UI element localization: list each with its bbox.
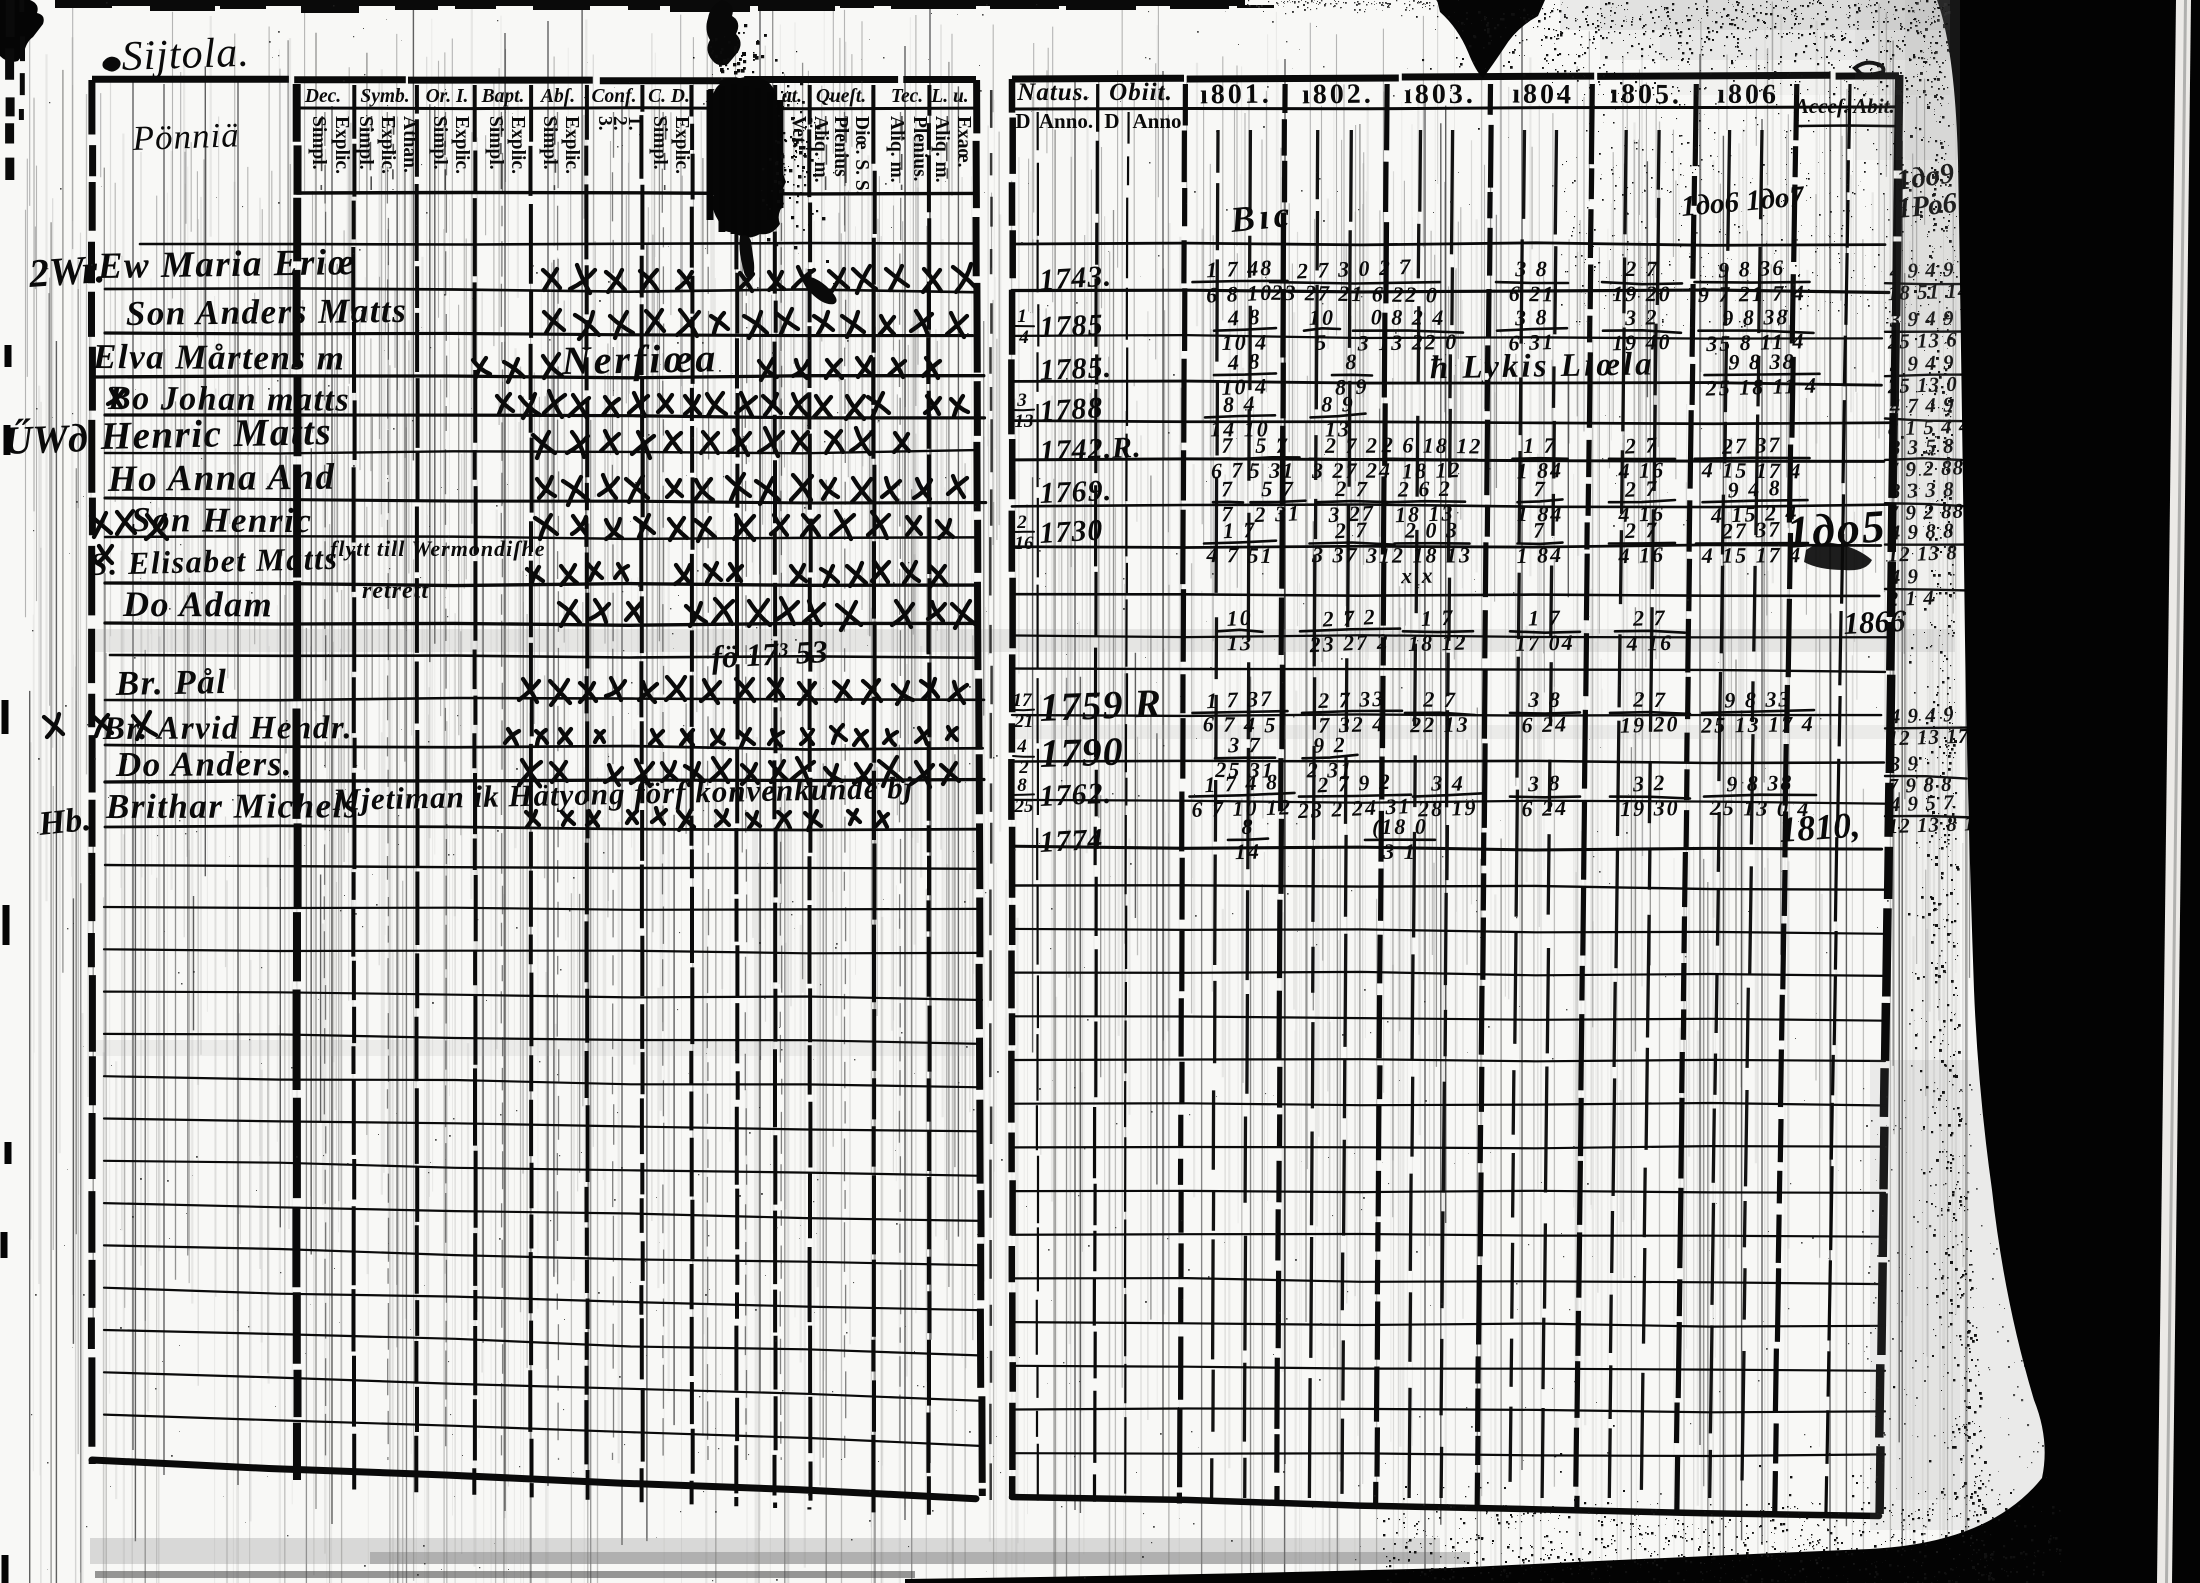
svg-text:9 2: 9 2 <box>1313 732 1347 758</box>
svg-text:8: 8 <box>1017 775 1027 796</box>
svg-text:1743.: 1743. <box>1038 259 1112 297</box>
svg-text:Henric Matts: Henric Matts <box>99 410 332 458</box>
svg-text:S. Elisabet Matts: S. Elisabet Matts <box>89 540 338 582</box>
svg-text:21: 21 <box>1014 711 1034 732</box>
svg-text:5 7: 5 7 <box>1255 433 1289 458</box>
svg-text:2 6 2: 2 6 2 <box>1397 476 1452 502</box>
svg-text:flytt till Wermondiſhe: flytt till Wermondiſhe <box>330 536 546 561</box>
svg-text:1 7: 1 7 <box>1523 433 1557 458</box>
svg-text:retrett: retrett <box>362 578 429 604</box>
svg-text:Explic.: Explic. <box>507 116 528 174</box>
svg-text:3 8: 3 8 <box>1514 304 1549 330</box>
svg-text:17: 17 <box>1013 690 1034 711</box>
svg-text:25 18 11 4: 25 18 11 4 <box>1704 373 1818 401</box>
svg-text:3 8: 3 8 <box>1527 687 1562 712</box>
svg-text:1759 R: 1759 R <box>1039 680 1163 730</box>
svg-text:7: 7 <box>1533 517 1547 543</box>
svg-text:Symb.: Symb. <box>360 86 409 107</box>
svg-text:5: 5 <box>1315 329 1329 354</box>
svg-text:Simpl.: Simpl. <box>308 116 329 170</box>
svg-text:Athan.: Athan. <box>399 116 420 173</box>
svg-text:1785.: 1785. <box>1039 351 1113 387</box>
svg-text:1788: 1788 <box>1038 391 1104 428</box>
svg-text:Or. I.: Or. I. <box>426 86 469 107</box>
svg-text:2 31: 2 31 <box>1253 500 1301 527</box>
svg-text:19 20: 19 20 <box>1612 281 1672 306</box>
svg-text:Abſ.: Abſ. <box>539 86 575 107</box>
svg-text:9 8 38: 9 8 38 <box>1726 770 1794 796</box>
svg-text:fö 17³ 53: fö 17³ 53 <box>710 633 828 675</box>
svg-text:3 2: 3 2 <box>1631 770 1667 797</box>
svg-text:Nerfiœa: Nerfiœa <box>560 335 718 383</box>
svg-text:2Wr.: 2Wr. <box>26 246 106 296</box>
svg-text:6 21: 6 21 <box>1509 281 1556 307</box>
svg-text:Hb.: Hb. <box>36 801 93 843</box>
svg-text:3 1: 3 1 <box>1382 839 1417 864</box>
svg-text:8 4: 8 4 <box>1222 391 1257 417</box>
svg-text:Do Adam: Do Adam <box>122 584 273 624</box>
svg-text:ı802.: ı802. <box>1302 79 1374 111</box>
svg-text:Diœ. S. S.: Diœ. S. S. <box>851 116 872 196</box>
svg-text:4 8: 4 8 <box>1226 348 1262 375</box>
svg-text:1: 1 <box>1017 306 1027 327</box>
svg-text:ı803.: ı803. <box>1404 79 1476 110</box>
svg-text:1 7 48: 1 7 48 <box>1206 255 1274 282</box>
svg-text:Pönniä: Pönniä <box>131 115 240 158</box>
svg-text:Dec.: Dec. <box>304 86 341 107</box>
svg-text:Ew Maria Eriœ: Ew Maria Eriœ <box>97 242 357 287</box>
svg-text:6 24: 6 24 <box>1521 795 1568 821</box>
svg-text:17 04: 17 04 <box>1515 630 1575 656</box>
svg-text:Elva Mårtens m: Elva Mårtens m <box>92 337 346 378</box>
svg-text:Aliq. m.: Aliq. m. <box>931 116 952 183</box>
svg-text:2 7: 2 7 <box>1623 476 1658 502</box>
svg-text:Exaœ.: Exaœ. <box>953 116 974 168</box>
svg-text:3 37 31: 3 37 31 <box>1311 542 1392 568</box>
svg-text:2 7 2: 2 7 2 <box>1321 604 1377 632</box>
svg-text:ħ Lykis Liœla: ħ Lykis Liœla <box>1430 346 1655 386</box>
svg-text:9 8 33: 9 8 33 <box>1724 686 1791 712</box>
svg-text:Explic.: Explic. <box>377 116 398 174</box>
svg-text:2 7: 2 7 <box>1632 687 1667 713</box>
svg-text:4 7 51: 4 7 51 <box>1205 542 1273 568</box>
svg-text:6 8 10: 6 8 10 <box>1206 280 1274 308</box>
svg-text:D: D <box>1015 109 1030 133</box>
svg-text:13: 13 <box>1015 411 1034 432</box>
svg-text:Tec.: Tec. <box>891 86 923 107</box>
svg-text:4 8: 4 8 <box>1226 304 1262 331</box>
svg-text:14: 14 <box>1235 839 1261 864</box>
svg-text:5 7: 5 7 <box>1261 476 1295 501</box>
svg-text:9 8 38: 9 8 38 <box>1722 304 1790 331</box>
svg-text:18 12: 18 12 <box>1408 630 1468 656</box>
svg-text:1790: 1790 <box>1039 728 1124 776</box>
svg-text:4: 4 <box>1018 327 1029 348</box>
svg-text:Ho Anna And: Ho Anna And <box>107 457 336 500</box>
svg-text:1 7: 1 7 <box>1420 605 1455 631</box>
svg-text:27 37: 27 37 <box>1720 516 1782 544</box>
svg-text:2 7: 2 7 <box>1334 476 1369 501</box>
svg-text:Son Henric: Son Henric <box>131 500 313 540</box>
svg-text:16: 16 <box>1015 533 1035 554</box>
svg-text:Son Anders Matts: Son Anders Matts <box>126 291 408 333</box>
svg-text:Obiit.: Obiit. <box>1109 79 1173 106</box>
svg-text:9 8 38: 9 8 38 <box>1728 349 1795 375</box>
svg-text:Queſt.: Queſt. <box>816 86 866 107</box>
svg-text:9 7 21 7 4: 9 7 21 7 4 <box>1698 280 1806 307</box>
svg-text:7: 7 <box>1221 476 1235 502</box>
svg-text:4 16: 4 16 <box>1625 630 1673 656</box>
svg-text:Βɪс: Βɪс <box>1228 194 1296 240</box>
svg-text:2 7: 2 7 <box>1623 432 1659 459</box>
svg-text:Br. Pål: Br. Pål <box>114 662 227 703</box>
svg-text:3 7: 3 7 <box>1227 732 1262 757</box>
svg-text:2 7 33: 2 7 33 <box>1317 686 1386 713</box>
svg-text:2 6 18 12: 2 6 18 12 <box>1381 432 1483 458</box>
svg-text:2 7: 2 7 <box>1623 517 1658 543</box>
svg-text:1 84: 1 84 <box>1516 542 1563 568</box>
svg-text:6 24: 6 24 <box>1521 711 1568 737</box>
svg-text:1762.: 1762. <box>1039 777 1113 813</box>
svg-text:Simpl.: Simpl. <box>355 116 376 170</box>
svg-text:8: 8 <box>1241 814 1254 839</box>
svg-text:2 7: 2 7 <box>1632 605 1667 631</box>
svg-text:3 8: 3 8 <box>1514 256 1549 281</box>
svg-text:Aliq. m.: Aliq. m. <box>886 116 907 183</box>
svg-text:2 7 2: 2 7 2 <box>1324 433 1379 458</box>
svg-text:Acceſ.: Acceſ. <box>1793 94 1849 118</box>
svg-text:3.: 3. <box>594 116 615 131</box>
svg-text:2 7: 2 7 <box>1624 256 1659 281</box>
svg-text:3 2: 3 2 <box>1624 304 1659 330</box>
svg-text:9 4 8: 9 4 8 <box>1727 475 1782 503</box>
svg-text:Bapt.: Bapt. <box>481 86 525 107</box>
svg-text:1742.R.: 1742.R. <box>1039 431 1142 468</box>
svg-text:Sijtola.: Sijtola. <box>121 30 251 80</box>
svg-text:1 7 37: 1 7 37 <box>1206 686 1274 714</box>
svg-text:2 0 3: 2 0 3 <box>1404 517 1459 542</box>
svg-text:Explic.: Explic. <box>451 116 472 174</box>
svg-text:Simpl.: Simpl. <box>539 116 560 170</box>
svg-text:Plenius: Plenius <box>830 116 851 177</box>
svg-text:Brithar Michels: Brithar Michels <box>105 786 359 826</box>
svg-text:25: 25 <box>1014 796 1035 817</box>
svg-text:3 8: 3 8 <box>1526 770 1561 796</box>
svg-text:1774: 1774 <box>1039 823 1105 859</box>
svg-text:2 7 9 2: 2 7 9 2 <box>1316 769 1393 798</box>
svg-text:C. D.: C. D. <box>648 86 690 107</box>
svg-text:x x: x x <box>1400 563 1435 589</box>
svg-text:1 7: 1 7 <box>1222 517 1257 543</box>
svg-text:8: 8 <box>1345 349 1359 374</box>
svg-text:3: 3 <box>1016 390 1027 411</box>
svg-text:Explic.: Explic. <box>331 116 352 174</box>
svg-text:D: D <box>1104 109 1119 133</box>
svg-text:25 13 17 4: 25 13 17 4 <box>1700 711 1815 738</box>
svg-text:27 37: 27 37 <box>1721 432 1782 459</box>
svg-text:Do Anders.: Do Anders. <box>115 744 293 784</box>
svg-text:19 20: 19 20 <box>1620 711 1680 738</box>
svg-text:2: 2 <box>1016 512 1027 533</box>
svg-text:1785: 1785 <box>1039 308 1104 344</box>
svg-text:2 7: 2 7 <box>1422 687 1457 712</box>
svg-text:ŰWд.: ŰWд. <box>3 415 99 463</box>
svg-text:4 16: 4 16 <box>1617 542 1665 569</box>
svg-text:Simpl.: Simpl. <box>429 116 450 170</box>
svg-text:19 30: 19 30 <box>1620 795 1680 821</box>
svg-text:Anno.: Anno. <box>1039 109 1093 133</box>
svg-text:23 27 21 6 22 0: 23 27 21 6 22 0 <box>1270 280 1439 308</box>
svg-text:8 9: 8 9 <box>1321 391 1355 416</box>
svg-text:2 7 3 0 2 7: 2 7 3 0 2 7 <box>1295 254 1412 284</box>
svg-text:Explic.: Explic. <box>671 116 692 174</box>
svg-text:Natus.: Natus. <box>1016 79 1090 106</box>
svg-text:7: 7 <box>1221 433 1234 458</box>
svg-text:Conf.: Conf. <box>592 86 637 107</box>
svg-text:3 4: 3 4 <box>1430 770 1465 795</box>
svg-text:23 27 2: 23 27 2 <box>1308 628 1390 657</box>
svg-text:Anno: Anno <box>1132 109 1181 133</box>
svg-text:10: 10 <box>1226 605 1253 631</box>
svg-text:2 7: 2 7 <box>1333 517 1369 543</box>
svg-text:1810,: 1810, <box>1778 804 1862 850</box>
svg-text:9 8 36: 9 8 36 <box>1718 255 1786 283</box>
svg-text:7: 7 <box>1533 476 1546 501</box>
svg-text:1 7: 1 7 <box>1528 605 1562 631</box>
svg-text:Simpl.: Simpl. <box>485 116 506 170</box>
svg-text:1730: 1730 <box>1038 513 1104 550</box>
svg-text:10: 10 <box>1309 305 1335 330</box>
svg-text:22 13: 22 13 <box>1409 712 1470 738</box>
svg-text:13: 13 <box>1227 630 1253 655</box>
svg-text:(18 0: (18 0 <box>1372 814 1428 839</box>
svg-text:4: 4 <box>1016 736 1027 757</box>
svg-text:0 8 2 4: 0 8 2 4 <box>1371 304 1446 330</box>
svg-text:Plenius.: Plenius. <box>909 116 930 182</box>
svg-text:Explic.: Explic. <box>561 116 582 174</box>
svg-text:ı801.: ı801. <box>1200 79 1272 111</box>
svg-text:L. u.: L. u. <box>930 86 968 107</box>
svg-text:Simpl.: Simpl. <box>649 116 670 170</box>
svg-text:1769.: 1769. <box>1039 474 1113 510</box>
svg-text:ı804: ı804 <box>1512 78 1574 110</box>
